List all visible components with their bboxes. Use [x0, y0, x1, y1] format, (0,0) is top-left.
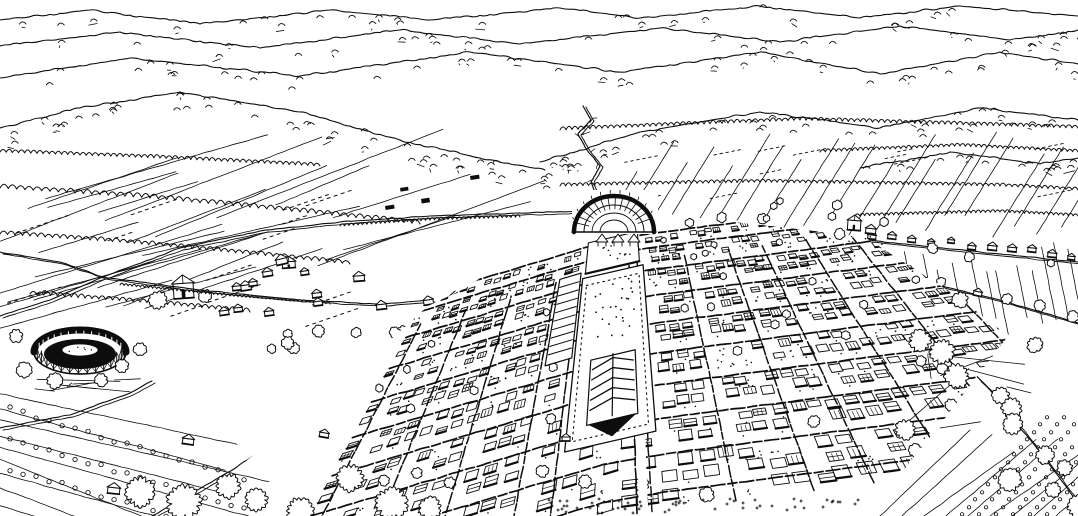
city-illustration [0, 0, 1078, 516]
illustration-figure [0, 0, 1078, 516]
